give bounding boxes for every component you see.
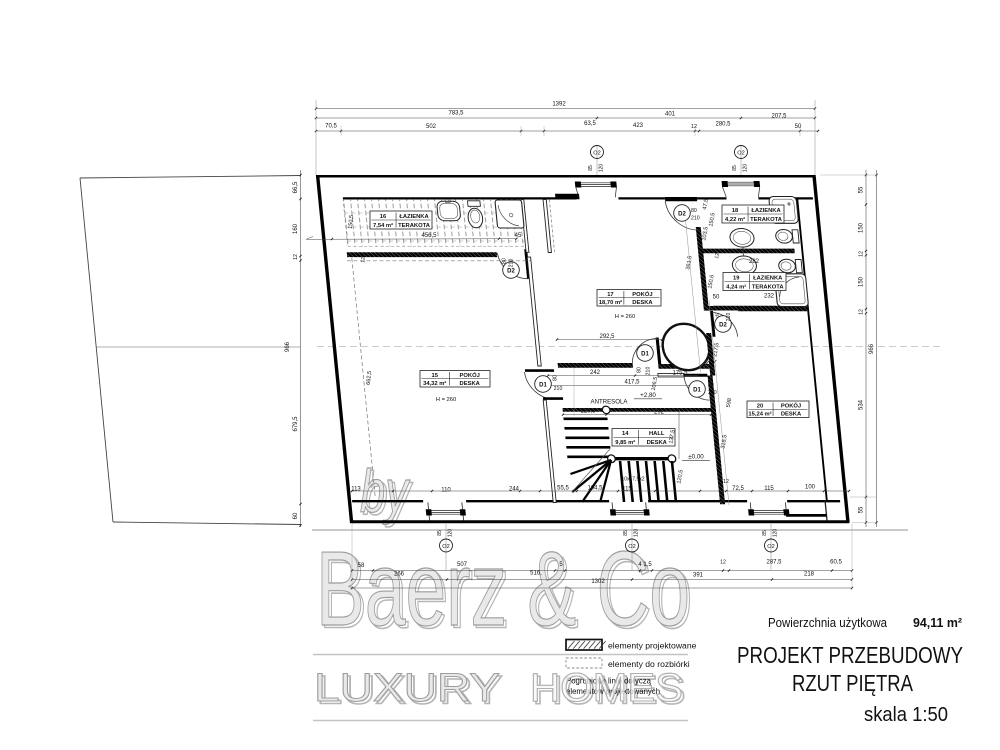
- svg-text:PROJEKT PRZEBUDOWY: PROJEKT PRZEBUDOWY: [737, 642, 963, 668]
- svg-text:O2: O2: [593, 150, 600, 156]
- svg-text:58: 58: [358, 563, 365, 569]
- svg-text:150,5: 150,5: [348, 215, 355, 229]
- svg-text:10x17,5x2: 10x17,5x2: [621, 477, 644, 483]
- svg-text:ŁAZIENKA: ŁAZIENKA: [399, 214, 429, 220]
- svg-text:14: 14: [622, 431, 629, 437]
- svg-text:63,5: 63,5: [584, 121, 596, 127]
- svg-text:12: 12: [691, 124, 697, 130]
- svg-text:210: 210: [554, 386, 563, 392]
- svg-text:4,22 m²: 4,22 m²: [725, 216, 745, 223]
- svg-text:12: 12: [859, 251, 865, 257]
- svg-text:110: 110: [441, 488, 451, 494]
- svg-text:210: 210: [691, 216, 700, 222]
- svg-text:skala 1:50: skala 1:50: [864, 703, 948, 726]
- svg-text:55: 55: [859, 186, 865, 193]
- svg-text:TERAKOTA: TERAKOTA: [752, 284, 785, 290]
- svg-text:120: 120: [743, 164, 749, 173]
- svg-text:120,5: 120,5: [580, 409, 596, 415]
- svg-text:120: 120: [773, 529, 779, 538]
- svg-text:±0,00: ±0,00: [688, 454, 704, 461]
- svg-text:20: 20: [757, 403, 763, 409]
- svg-text:150: 150: [859, 222, 865, 233]
- svg-text:113: 113: [351, 487, 361, 493]
- svg-text:70,5: 70,5: [325, 124, 337, 130]
- svg-text:966: 966: [285, 341, 291, 352]
- svg-text:516,: 516,: [530, 571, 542, 577]
- svg-text:55: 55: [859, 506, 865, 513]
- svg-text:391: 391: [693, 573, 704, 579]
- svg-text:HOMES: HOMES: [530, 666, 683, 710]
- svg-text:12: 12: [859, 309, 865, 315]
- svg-text:45: 45: [515, 233, 522, 239]
- svg-text:218: 218: [804, 572, 815, 578]
- svg-text:DESKA: DESKA: [460, 381, 481, 387]
- svg-text:292: 292: [654, 410, 665, 416]
- svg-text:679,5: 679,5: [293, 416, 299, 432]
- svg-text:O2: O2: [628, 544, 635, 550]
- svg-text:534: 534: [859, 399, 865, 410]
- svg-text:50: 50: [795, 124, 802, 130]
- svg-text:12: 12: [293, 254, 299, 260]
- svg-text:+2,80: +2,80: [640, 392, 656, 399]
- svg-text:18: 18: [732, 208, 739, 214]
- svg-text:12: 12: [720, 560, 726, 566]
- svg-text:175,5: 175,5: [672, 371, 688, 377]
- svg-text:72,5: 72,5: [732, 486, 744, 492]
- svg-text:60: 60: [293, 512, 299, 519]
- svg-text:80: 80: [502, 258, 508, 264]
- svg-text:85: 85: [732, 165, 738, 171]
- svg-text:34,32 m²: 34,32 m²: [423, 380, 446, 387]
- svg-text:9,85 m²: 9,85 m²: [615, 439, 635, 446]
- svg-text:66,5: 66,5: [293, 181, 299, 193]
- svg-text:by: by: [360, 458, 411, 525]
- svg-text:DESKA: DESKA: [781, 412, 802, 418]
- svg-text:423: 423: [633, 123, 644, 129]
- svg-text:POKÓJ: POKÓJ: [781, 401, 801, 409]
- svg-text:D2: D2: [507, 269, 515, 275]
- svg-text:d2: d2: [715, 312, 720, 318]
- svg-text:210: 210: [708, 390, 717, 396]
- svg-text:POKÓJ: POKÓJ: [460, 371, 480, 379]
- svg-text:232: 232: [764, 294, 775, 300]
- svg-text:D2: D2: [719, 323, 727, 329]
- svg-text:17: 17: [607, 292, 613, 298]
- svg-text:DESKA: DESKA: [647, 440, 668, 446]
- svg-text:115: 115: [764, 486, 774, 492]
- svg-text:elementy projektowane: elementy projektowane: [608, 641, 697, 651]
- svg-text:15,24 m²: 15,24 m²: [748, 411, 771, 418]
- svg-text:207,5: 207,5: [771, 114, 787, 120]
- svg-text:966: 966: [869, 343, 875, 354]
- svg-text:80: 80: [691, 208, 697, 214]
- svg-text:ŁAZIENKA: ŁAZIENKA: [753, 275, 783, 281]
- svg-text:12: 12: [723, 479, 729, 485]
- svg-text:D1: D1: [641, 352, 649, 358]
- svg-text:292,5: 292,5: [599, 334, 615, 340]
- svg-text:O2: O2: [767, 544, 774, 550]
- svg-text:210: 210: [509, 259, 515, 268]
- svg-text:662,5: 662,5: [366, 371, 373, 385]
- svg-text:104,5: 104,5: [587, 486, 603, 492]
- svg-text:80: 80: [637, 367, 643, 373]
- svg-text:TERAKOTA: TERAKOTA: [750, 217, 783, 223]
- svg-text:19: 19: [733, 275, 740, 281]
- svg-text:120: 120: [448, 529, 454, 538]
- svg-text:D1: D1: [539, 383, 547, 389]
- svg-text:502: 502: [426, 124, 437, 130]
- svg-text:94,11 m²: 94,11 m²: [913, 616, 962, 630]
- svg-text:O2: O2: [442, 544, 449, 550]
- svg-text:287,5: 287,5: [766, 560, 782, 566]
- svg-text:85: 85: [623, 530, 629, 536]
- svg-text:85: 85: [588, 165, 594, 171]
- svg-text:417,5: 417,5: [624, 380, 640, 386]
- svg-text:7,54 m²: 7,54 m²: [373, 222, 393, 229]
- svg-text:4,24 m²: 4,24 m²: [726, 283, 746, 290]
- svg-text:210: 210: [646, 367, 652, 376]
- svg-text:401: 401: [665, 112, 676, 118]
- svg-text:120: 120: [599, 164, 605, 173]
- svg-text:12: 12: [714, 252, 721, 259]
- svg-text:LUXURY: LUXURY: [314, 666, 500, 710]
- svg-text:55,5: 55,5: [557, 486, 569, 492]
- svg-text:POKÓJ: POKÓJ: [632, 290, 652, 298]
- svg-text:280,5: 280,5: [715, 122, 731, 128]
- svg-text:244: 244: [509, 487, 520, 493]
- svg-text:100: 100: [805, 485, 816, 491]
- svg-text:242: 242: [590, 370, 601, 376]
- svg-text:4 1,5: 4 1,5: [638, 562, 652, 568]
- svg-text:H = 260: H = 260: [615, 314, 635, 320]
- svg-text:85: 85: [762, 530, 768, 536]
- svg-text:115: 115: [622, 487, 632, 493]
- svg-text:266: 266: [394, 572, 405, 578]
- svg-text:16: 16: [380, 214, 387, 220]
- svg-text:15: 15: [431, 373, 438, 379]
- svg-text:18,70 m²: 18,70 m²: [599, 299, 622, 306]
- svg-text:RZUT PIĘTRA: RZUT PIĘTRA: [792, 670, 914, 696]
- svg-text:60,5: 60,5: [830, 560, 842, 566]
- svg-text:D2: D2: [678, 212, 686, 218]
- svg-text:50: 50: [713, 295, 720, 301]
- svg-text:160: 160: [293, 223, 299, 234]
- svg-text:80: 80: [553, 375, 559, 381]
- svg-text:85: 85: [437, 530, 443, 536]
- svg-text:HALL: HALL: [649, 431, 665, 437]
- svg-text:120: 120: [634, 529, 640, 538]
- svg-text:150: 150: [859, 276, 865, 287]
- svg-text:1392: 1392: [552, 102, 566, 108]
- svg-text:H = 260: H = 260: [436, 397, 456, 403]
- svg-text:D1: D1: [693, 388, 701, 394]
- svg-text:TERAKOTA: TERAKOTA: [398, 223, 431, 229]
- svg-text:DESKA: DESKA: [632, 300, 653, 306]
- svg-text:O2: O2: [737, 150, 744, 156]
- svg-text:456,5: 456,5: [421, 233, 437, 239]
- svg-text:ŁAZIENKA: ŁAZIENKA: [751, 208, 781, 214]
- svg-text:210: 210: [726, 313, 732, 322]
- svg-text:282: 282: [749, 259, 760, 265]
- svg-text:507: 507: [457, 562, 468, 568]
- svg-text:783,5: 783,5: [448, 111, 464, 117]
- svg-text:80: 80: [708, 383, 714, 389]
- svg-text:12: 12: [360, 257, 366, 263]
- svg-text:ANTRESOLA: ANTRESOLA: [591, 399, 629, 406]
- svg-text:Powierzchnia użytkowa: Powierzchnia użytkowa: [768, 616, 887, 630]
- svg-text:1302: 1302: [591, 579, 605, 585]
